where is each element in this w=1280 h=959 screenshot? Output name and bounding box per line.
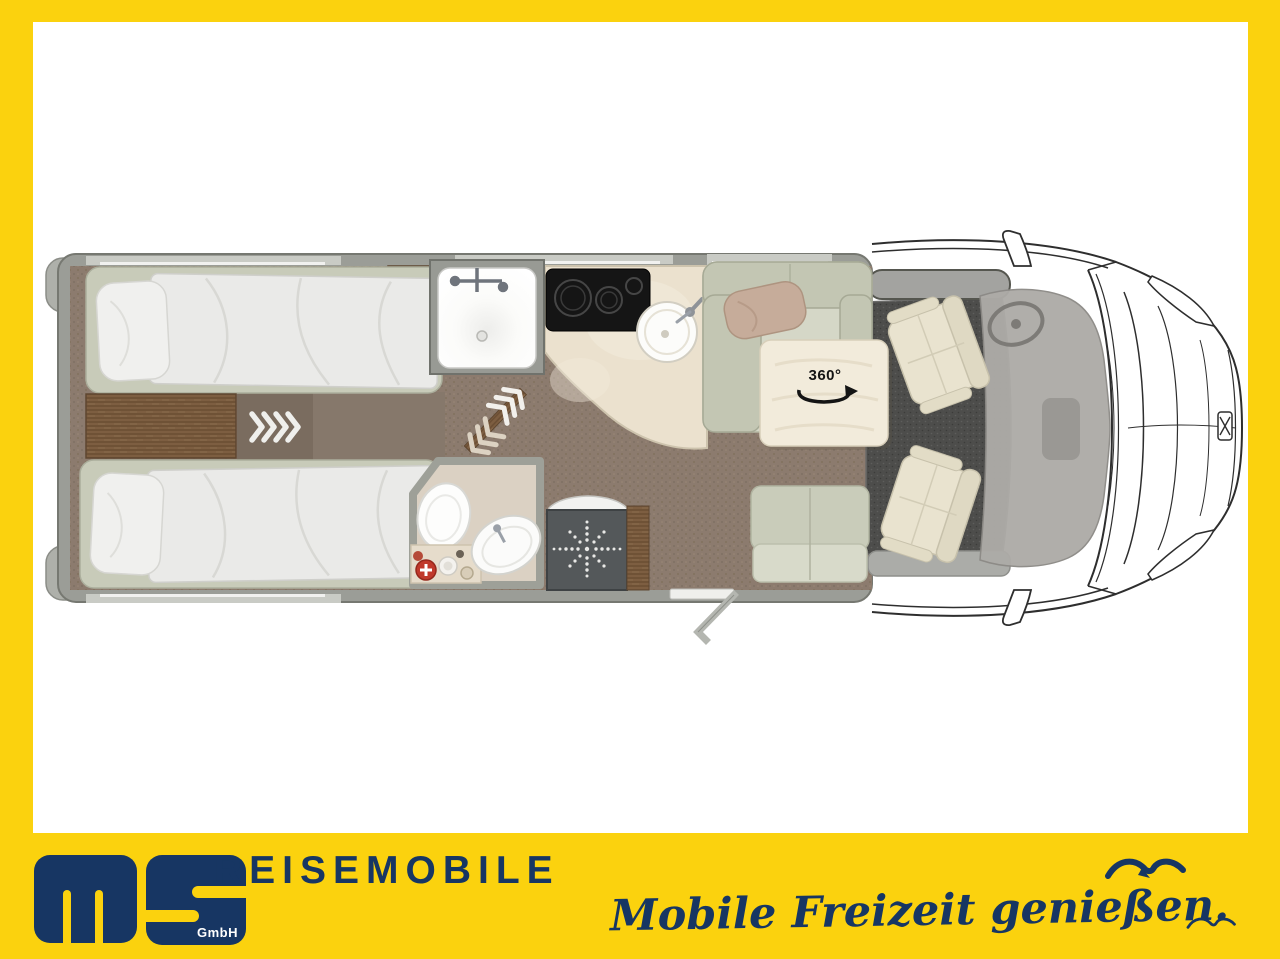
kitchen-cooktop	[546, 269, 650, 331]
cab	[866, 231, 1242, 625]
cab-dashboard	[980, 289, 1110, 566]
shower-cabin	[430, 260, 544, 374]
page-frame: 360° GmbH REISEMOBILE Mobile Freizeit ge…	[0, 0, 1280, 959]
rotating-table	[760, 340, 892, 450]
pillow	[95, 280, 170, 382]
logo-s-slot	[146, 910, 199, 922]
entry-door	[670, 589, 734, 640]
shower-drain-icon	[477, 331, 487, 341]
headlight-icons	[1148, 276, 1214, 580]
rear-twin-bed-top	[86, 267, 442, 393]
floorplan-drawing	[0, 0, 1280, 959]
seagull-icons	[1090, 848, 1280, 948]
bench-seat	[751, 486, 869, 582]
shower-tray	[547, 496, 649, 590]
seagull-icon-small	[1188, 919, 1235, 927]
washroom	[411, 461, 550, 586]
logo-gmbh-text: GmbH	[197, 925, 238, 940]
tray-side-panel	[627, 506, 649, 590]
logo-m-slot	[95, 890, 103, 943]
logo-m-slot	[63, 890, 71, 943]
bed-pullout-strips	[237, 392, 445, 462]
brand-wordmark: REISEMOBILE	[214, 849, 560, 893]
logo-m-block	[34, 855, 137, 943]
table-rotation-label: 360°	[763, 367, 887, 384]
bedside-chest	[86, 394, 236, 458]
grille-emblem-icon	[1218, 412, 1232, 440]
rear-twin-bed-bottom	[80, 460, 440, 588]
pillow	[89, 472, 164, 576]
